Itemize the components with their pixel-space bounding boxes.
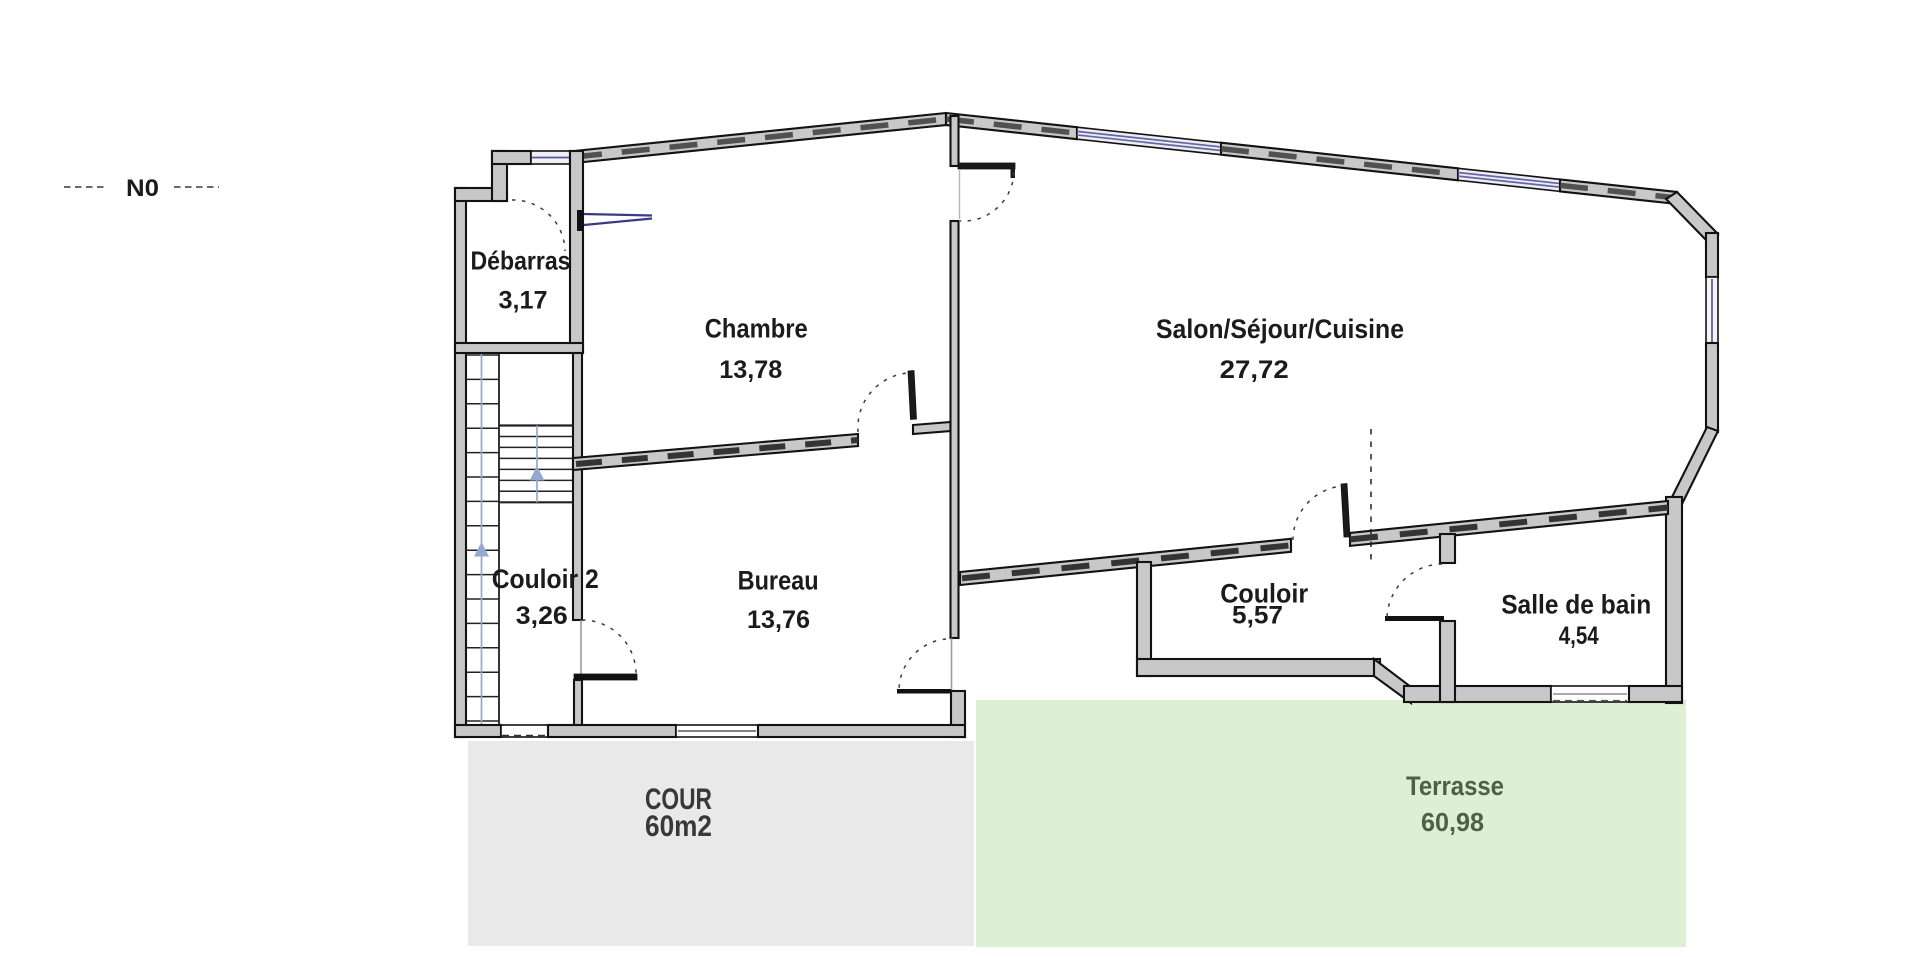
svg-text:N0: N0 [126, 175, 159, 202]
svg-text:13,78: 13,78 [719, 356, 782, 384]
svg-text:5,57: 5,57 [1232, 602, 1283, 630]
svg-text:Salon/Séjour/Cuisine: Salon/Séjour/Cuisine [1156, 314, 1404, 344]
svg-text:4,54: 4,54 [1559, 622, 1599, 650]
svg-text:60,98: 60,98 [1421, 807, 1484, 837]
svg-text:27,72: 27,72 [1220, 356, 1289, 384]
svg-text:60m2: 60m2 [645, 810, 712, 843]
svg-text:Débarras: Débarras [471, 246, 571, 276]
svg-text:13,76: 13,76 [747, 606, 810, 634]
svg-text:Salle de bain: Salle de bain [1501, 590, 1651, 620]
svg-text:Terrasse: Terrasse [1406, 771, 1504, 801]
svg-text:Chambre: Chambre [705, 314, 808, 344]
svg-text:3,26: 3,26 [516, 602, 568, 630]
svg-text:3,17: 3,17 [499, 287, 548, 315]
svg-text:Bureau: Bureau [738, 566, 819, 596]
svg-text:Couloir 2: Couloir 2 [492, 564, 599, 594]
